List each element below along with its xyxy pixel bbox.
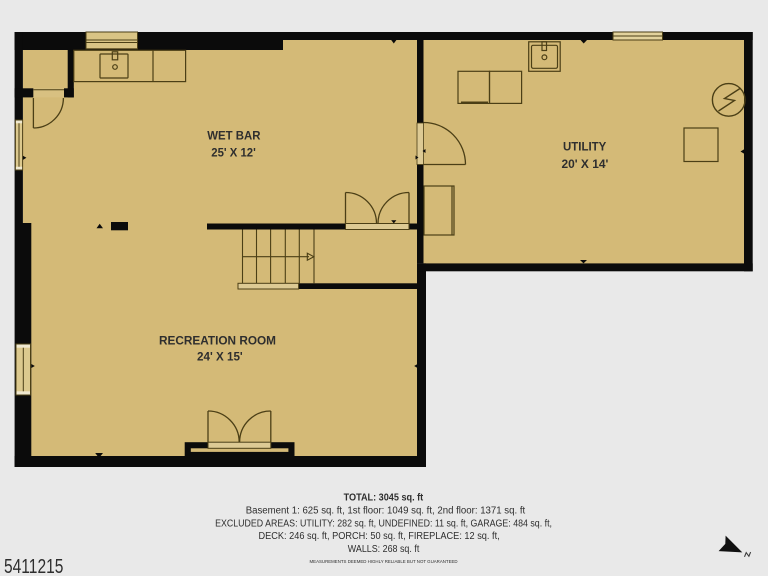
svg-text:MEASUREMENTS DEEMED HIGHLY REL: MEASUREMENTS DEEMED HIGHLY RELIABLE BUT … [310,559,458,564]
svg-text:WET BAR: WET BAR [207,131,261,143]
svg-text:25' X 12': 25' X 12' [211,146,256,160]
svg-text:20' X 14': 20' X 14' [562,157,609,171]
svg-text:EXCLUDED AREAS: UTILITY: 282 s: EXCLUDED AREAS: UTILITY: 282 sq. ft, UND… [215,518,552,529]
svg-text:RECREATION ROOM: RECREATION ROOM [159,335,276,347]
svg-text:UTILITY: UTILITY [563,142,607,154]
svg-text:DECK: 246 sq. ft, PORCH: 50 sq: DECK: 246 sq. ft, PORCH: 50 sq. ft, FIRE… [259,531,500,542]
svg-text:WALLS: 268 sq. ft: WALLS: 268 sq. ft [348,544,420,555]
svg-text:TOTAL: 3045 sq. ft: TOTAL: 3045 sq. ft [344,493,424,504]
svg-text:24' X 15': 24' X 15' [197,350,243,364]
svg-text:Basement 1: 625 sq. ft, 1st fl: Basement 1: 625 sq. ft, 1st floor: 1049 … [246,506,526,517]
svg-text:5411215: 5411215 [4,556,63,576]
